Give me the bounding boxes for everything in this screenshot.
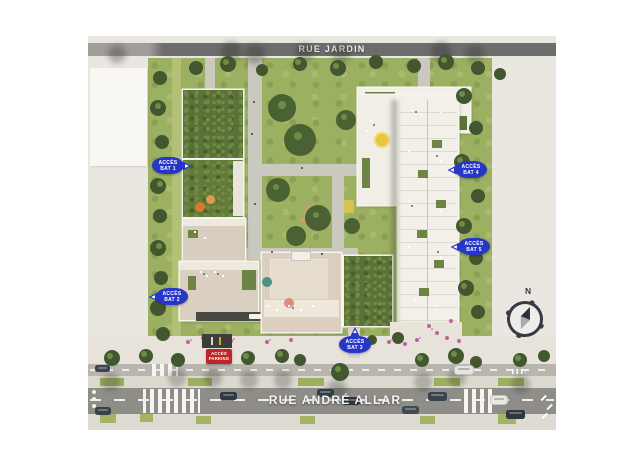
access-badge-bat-5: ACCÈS BAT 5 <box>458 238 490 255</box>
rooftop-box <box>292 252 310 260</box>
sidewalk <box>88 336 556 364</box>
roof-planter <box>434 260 444 268</box>
access-badge-label: BAT 2 <box>156 297 188 303</box>
access-parking-badge: ACCÈS PARKING <box>206 349 232 364</box>
crosswalk <box>150 389 200 413</box>
access-badge-bat-3: ACCÈS BAT 3 <box>339 336 371 353</box>
median-green <box>100 378 124 386</box>
access-badge-bat-2: ACCÈS BAT 2 <box>156 288 188 305</box>
street-name-bottom: RUE ANDRÉ ALLAR <box>250 393 420 407</box>
courtyard-path <box>418 58 430 88</box>
roof-planter <box>188 230 198 238</box>
sidewalk <box>88 414 556 430</box>
green-roof-strip <box>344 256 392 326</box>
compass-needle-south <box>516 316 530 331</box>
car <box>220 392 237 400</box>
street-name-top: RUE JARDIN <box>252 44 412 54</box>
compass-knob <box>529 300 535 306</box>
trees-layer <box>0 0 14 14</box>
roof-furniture-layer <box>0 0 2 2</box>
parking-slot-marks <box>512 369 526 374</box>
car <box>402 406 419 414</box>
tree-shadows-layer <box>0 0 14 14</box>
road-dot <box>92 397 96 401</box>
building-bat1-green-roof <box>183 90 243 158</box>
building-bat3-terrace <box>264 300 339 317</box>
parasol-yellow <box>374 132 390 148</box>
car <box>506 410 525 419</box>
access-badge-label: BAT 5 <box>458 247 490 253</box>
stop-line <box>143 389 146 413</box>
road-dot <box>92 390 96 394</box>
compass-knob <box>506 310 512 316</box>
parasol-orange <box>195 202 205 212</box>
van <box>455 366 473 374</box>
parasol-teal <box>262 277 272 287</box>
roof-planter <box>436 200 446 208</box>
roof-planter <box>418 170 428 178</box>
median-green <box>298 378 324 386</box>
garden-bed <box>300 218 308 223</box>
median-green <box>188 378 212 386</box>
access-badge-label: BAT 4 <box>455 170 487 176</box>
access-badge-label: BAT 3 <box>339 345 371 351</box>
car <box>95 365 110 372</box>
crosswalk <box>464 389 492 413</box>
tree-highlights-layer <box>0 0 6 6</box>
building-bat3-roof-ridge <box>270 259 328 299</box>
canopy-layer <box>0 0 20 20</box>
parking-ramp <box>202 334 232 348</box>
people-dots-layer <box>0 0 2 2</box>
car <box>95 407 111 415</box>
access-badge-bat-4: ACCÈS BAT 4 <box>455 161 487 178</box>
building-shadow <box>391 100 398 328</box>
roof-planter <box>432 140 442 148</box>
roof-planter <box>242 270 256 290</box>
roof-planter <box>188 276 196 290</box>
crosswalk <box>152 364 178 376</box>
access-badge-bat-1: ACCÈS BAT 1 <box>152 157 184 174</box>
play-area <box>344 200 354 213</box>
garden-bed <box>318 212 328 218</box>
median-green <box>498 378 524 386</box>
verge-green <box>300 416 315 424</box>
building-bat1-terrace <box>233 161 243 216</box>
roof-planter <box>362 158 370 188</box>
compass-north-label: N <box>525 286 531 296</box>
car <box>491 396 507 404</box>
verge-green <box>196 416 211 424</box>
access-badge-label: BAT 1 <box>152 166 184 172</box>
verge-green <box>140 414 153 422</box>
ramp-lane-mark <box>211 337 213 345</box>
courtyard-path <box>205 58 215 90</box>
roof-planter <box>419 288 429 296</box>
ramp-lane-mark <box>219 337 221 345</box>
adjacent-parcel <box>90 68 147 166</box>
courtyard-path <box>248 164 358 176</box>
building-bat1-terrace-band <box>183 219 245 226</box>
garden-bed <box>305 205 315 211</box>
courtyard-path <box>332 176 344 248</box>
verge-green <box>100 414 116 423</box>
building-bat2-terrace-band <box>180 262 258 270</box>
verge-green <box>420 416 435 424</box>
parasol-orange <box>206 195 215 204</box>
roof-planter <box>417 230 427 238</box>
parasol-salmon <box>284 298 294 308</box>
courtyard-path <box>248 58 262 258</box>
access-parking-label: PARKING <box>206 356 232 361</box>
shrubs-layer <box>0 0 4 4</box>
car <box>428 392 447 401</box>
median-green <box>434 378 460 386</box>
